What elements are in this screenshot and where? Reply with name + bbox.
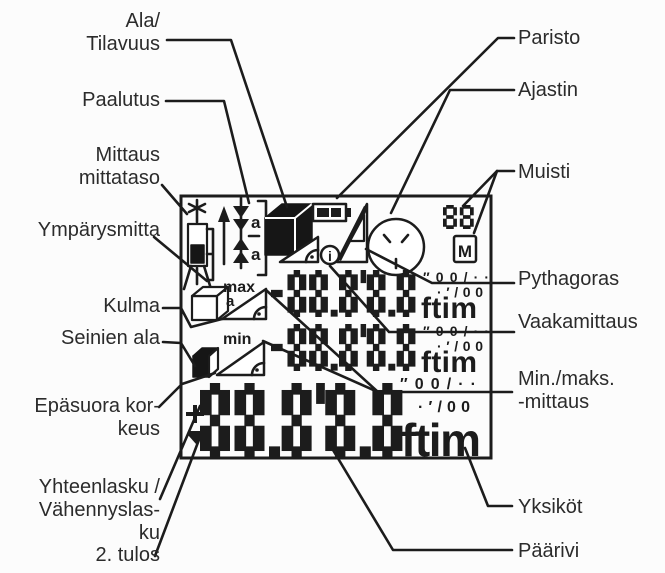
label-staking: Paalutus [82,89,160,112]
leader-area-volume [167,40,287,207]
up-arrow-icon [218,206,230,264]
leader-wall-area [163,342,195,366]
svg-text:i: i [328,248,332,264]
label-battery: Paristo [518,27,580,50]
label-min-max-measure: Min./maks. -mittaus [518,368,615,414]
leader-memory-count [463,171,514,206]
timer-clock-icon [368,219,424,275]
tripod-icon [184,266,211,289]
label-wall-area: Seinien ala [61,327,160,350]
main-row-digits [200,383,402,458]
leader-memory-box [474,171,497,233]
label-circumference: Ympärysmitta [38,219,160,242]
label-reference-level: Mittaus mittataso [79,144,160,190]
leader-battery [337,38,514,198]
info-circle-icon: i [321,246,339,264]
memory-count-digits [443,205,474,229]
max-sub-letter: a [226,293,235,310]
memory-box-icon: M [454,236,476,262]
label-second-result: 2. tulos [96,544,160,567]
staking-letter-a-top: a [251,213,261,232]
manual-display-diagram: a a i M ma [0,0,665,573]
leader-staking [166,101,249,203]
min-label: min [223,331,251,348]
svg-text:M: M [458,242,472,261]
battery-icon [313,204,351,221]
leader-reference-level [162,185,187,214]
label-horizontal-measure: Vaakamittaus [518,311,638,334]
staking-letter-a-bottom: a [251,245,261,264]
label-units: Yksiköt [518,496,582,519]
label-add-subtract: Yhteenlasku / Vähennyslas- ku [39,476,160,545]
label-main-row: Päärivi [518,540,579,563]
label-pythagoras: Pythagoras [518,268,619,291]
laser-star-icon [189,200,205,222]
label-area-volume: Ala/ Tilavuus [86,10,160,56]
label-timer: Ajastin [518,79,578,102]
reference-device-icon [188,224,207,266]
secondary-row-1-digits [271,270,415,317]
label-indirect-height: Epäsuora kor- keus [34,395,160,441]
label-memory: Muisti [518,161,570,184]
staking-arrows-icon [233,198,266,275]
label-angle: Kulma [103,295,160,318]
